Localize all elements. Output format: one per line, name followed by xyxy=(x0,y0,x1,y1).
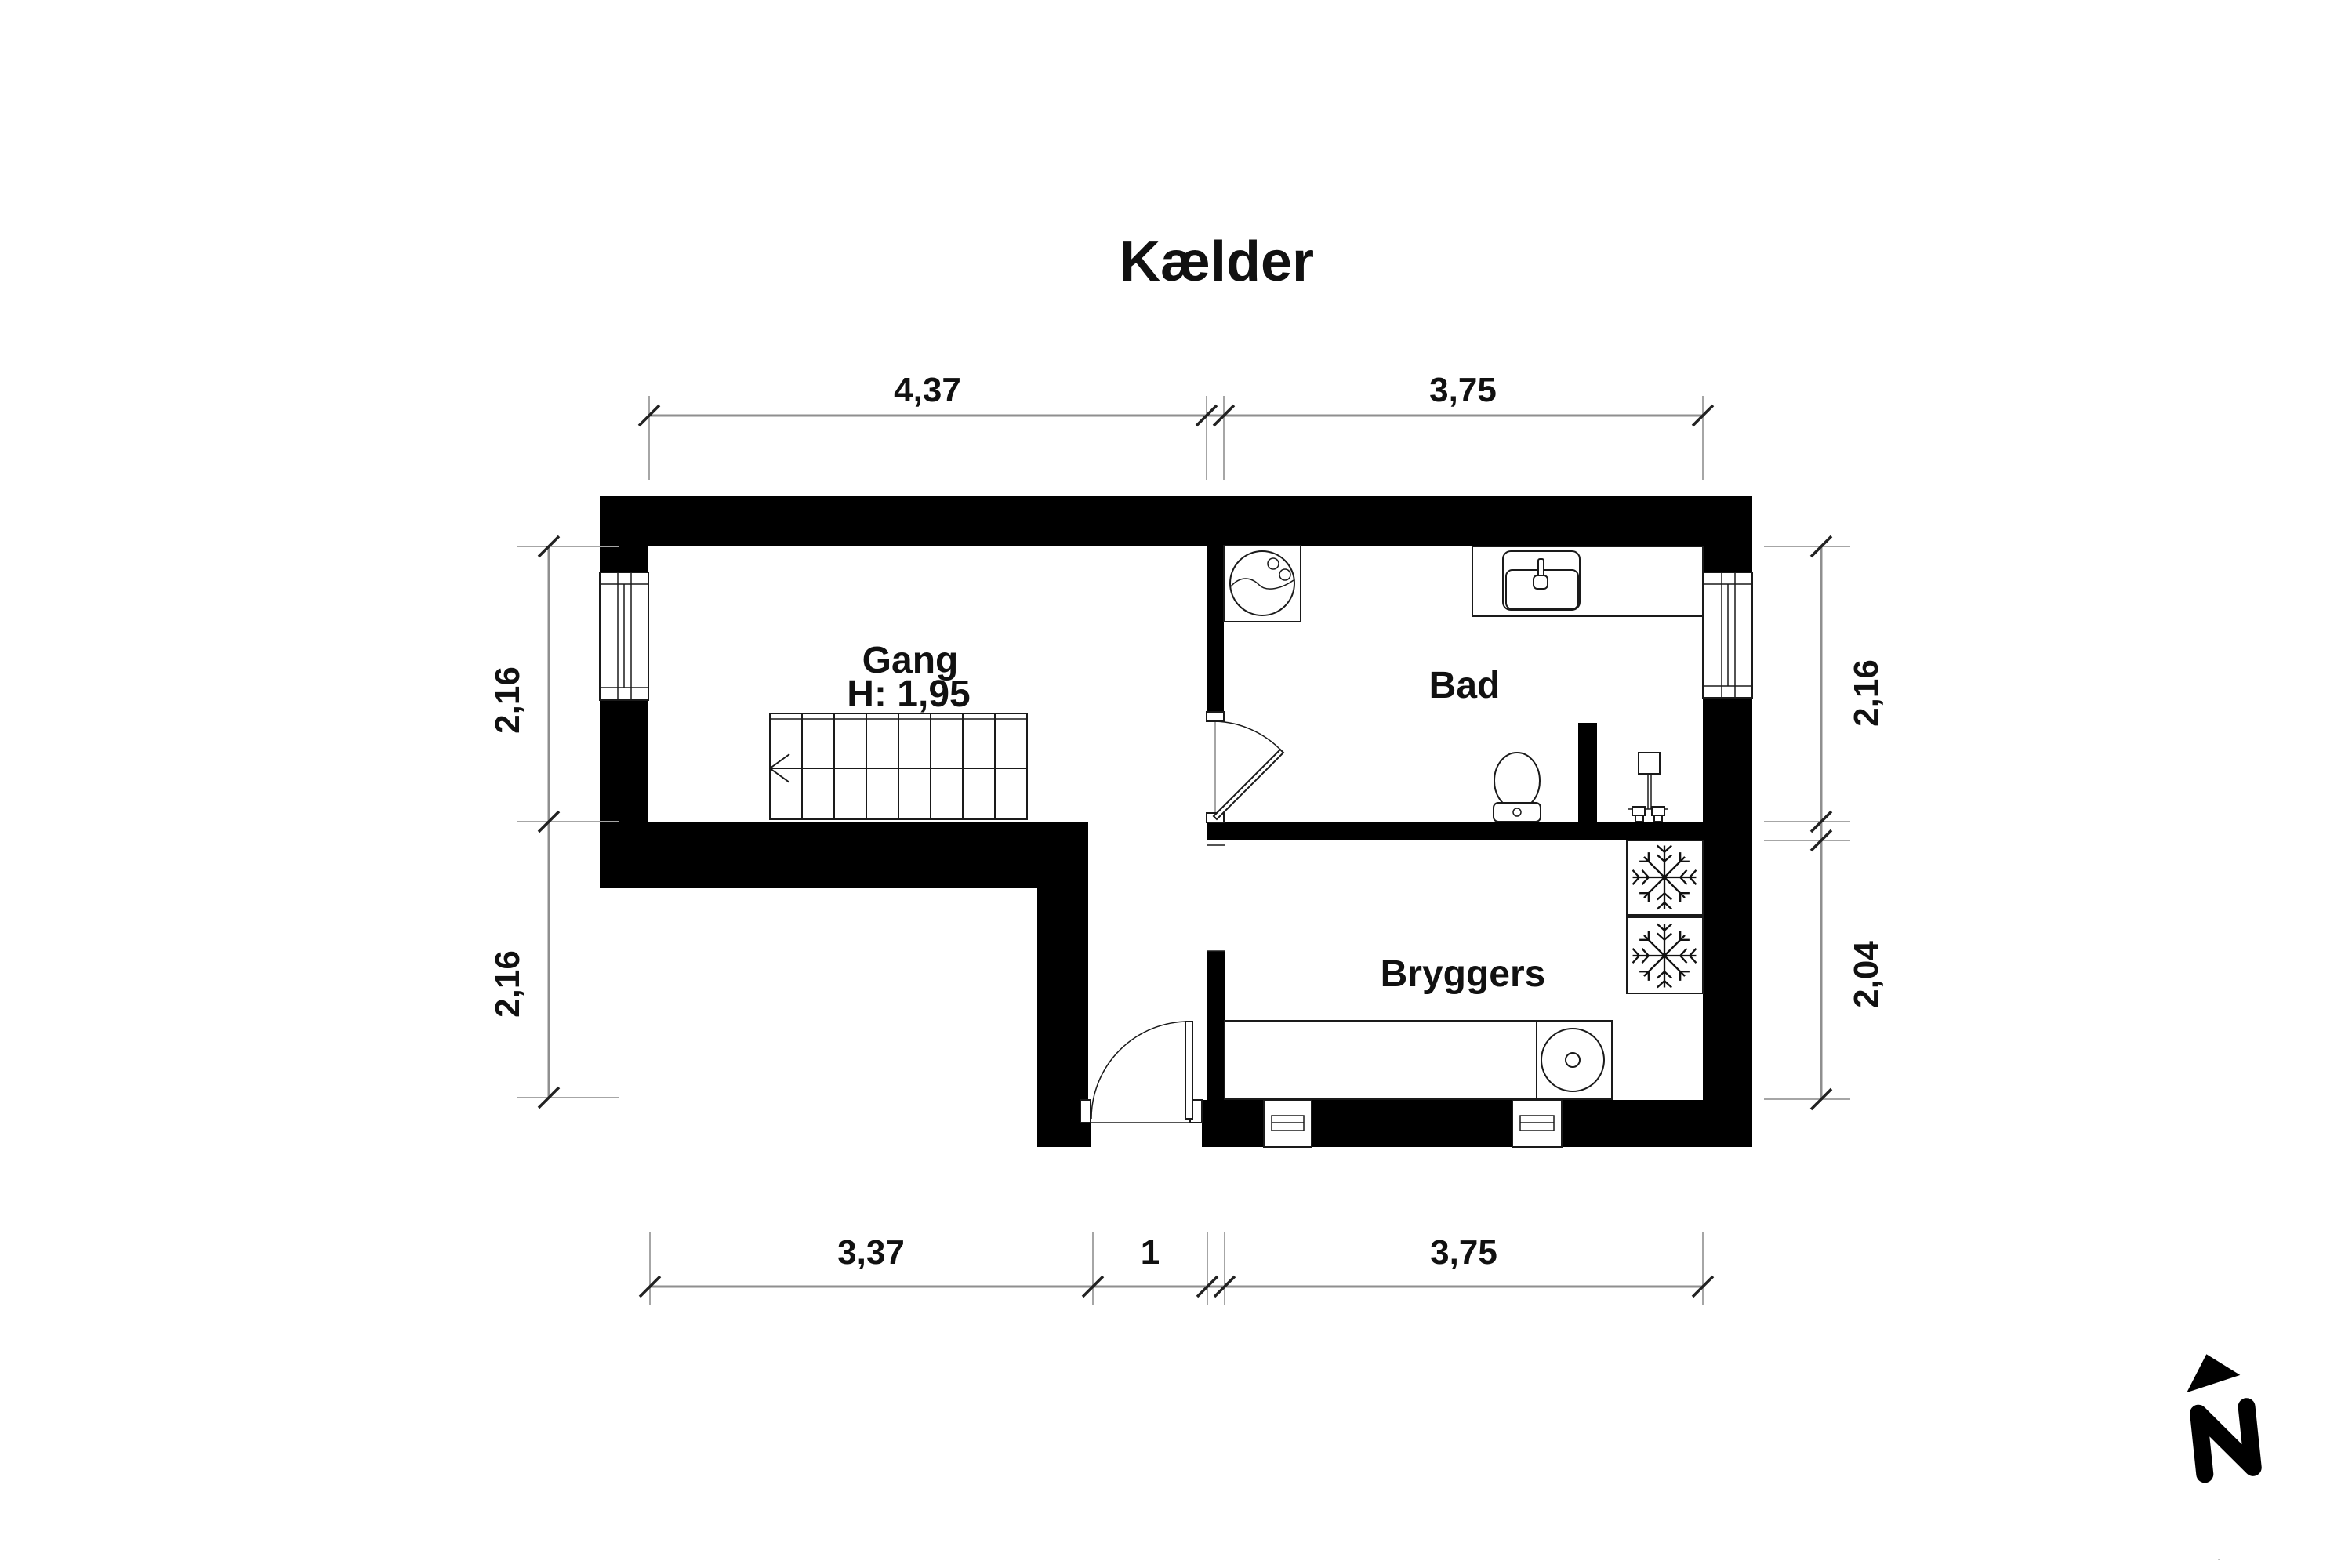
shower-mixer-icon xyxy=(1628,753,1668,822)
north-label-glyph xyxy=(2198,1406,2253,1474)
dimension-bottom: 3,37 1 3,75 xyxy=(640,1232,1713,1305)
dimension-top: 4,37 3,75 xyxy=(639,371,1713,480)
sink-icon xyxy=(1503,551,1580,610)
freezer-icon xyxy=(1627,917,1703,993)
dim-label: 4,37 xyxy=(894,371,961,409)
north-arrow-icon xyxy=(2183,1351,2252,1475)
wall-stub-bad xyxy=(1578,723,1597,822)
freezer-icon xyxy=(1627,840,1703,915)
room-label-bad: Bad xyxy=(1429,665,1501,706)
dim-label: 2,16 xyxy=(488,666,527,734)
wall-gang-bottom xyxy=(600,822,1088,888)
dim-label: 3,75 xyxy=(1430,1233,1497,1272)
stairs xyxy=(770,713,1027,819)
bryggers-counter xyxy=(1225,1021,1612,1099)
utility-sink-icon xyxy=(1541,1029,1604,1091)
dim-label: 2,16 xyxy=(488,950,527,1018)
dim-label: 2,16 xyxy=(1847,659,1886,727)
wall-left-upper xyxy=(600,496,648,572)
wall-bad-bryggers xyxy=(1207,822,1703,840)
bryggers-opening xyxy=(1207,845,1225,951)
room-height-gang: H: 1,95 xyxy=(847,673,970,715)
dim-label: 3,37 xyxy=(837,1233,905,1272)
toilet-icon xyxy=(1494,753,1541,822)
right-window-icon xyxy=(1703,572,1752,698)
wall-partition-gang-bad xyxy=(1207,546,1224,714)
entry-door-swing xyxy=(1080,1022,1202,1147)
wall-corridor-left xyxy=(1037,822,1088,1100)
wall-right-upper xyxy=(1703,496,1752,572)
left-window-icon xyxy=(600,572,648,700)
dim-label: 3,75 xyxy=(1429,371,1497,409)
wall-right-lower xyxy=(1703,698,1752,1147)
dim-label: 1 xyxy=(1141,1233,1160,1272)
page-title: Kælder xyxy=(1120,230,1314,293)
vent-window-icon xyxy=(1512,1100,1562,1147)
bad-door-swing xyxy=(1207,712,1283,822)
vent-window-icon xyxy=(1264,1100,1312,1147)
washing-machine-icon xyxy=(1224,546,1301,622)
room-label-bryggers: Bryggers xyxy=(1381,953,1546,995)
wall-bryggers-left xyxy=(1207,951,1225,1100)
wall-top xyxy=(600,496,1752,546)
floor-plan-page: Kælder xyxy=(0,0,2352,1568)
floor-plan-drawing: Kælder xyxy=(0,0,2352,1568)
dimension-right: 2,16 2,04 xyxy=(1764,536,1886,1109)
dim-label: 2,04 xyxy=(1847,941,1886,1008)
north-label: N xyxy=(2218,1559,2220,1561)
